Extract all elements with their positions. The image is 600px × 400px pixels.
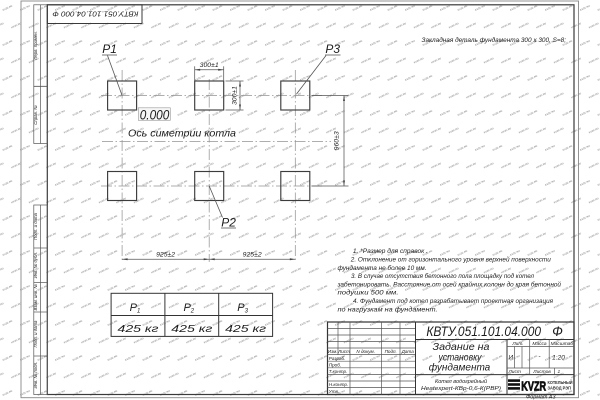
svg-text:Подп.: Подп.	[385, 349, 397, 354]
svg-text:Разраб.: Разраб.	[329, 356, 346, 361]
svg-text:Формат А3: Формат А3	[526, 395, 556, 400]
svg-text:300±1: 300±1	[200, 62, 219, 69]
svg-text:КОТЕЛЬНЫЙ: КОТЕЛЬНЫЙ	[548, 378, 574, 385]
svg-text:Проб.: Проб.	[329, 362, 341, 367]
svg-text:Р1: Р1	[102, 44, 117, 56]
svg-text:Закладная деталь фундамента 3: Закладная деталь фундамента 300 х 300, S…	[422, 36, 567, 44]
svg-text:Справ. №: Справ. №	[33, 105, 38, 125]
svg-text:И: И	[508, 355, 513, 362]
svg-text:Изм.: Изм.	[328, 349, 338, 354]
svg-text:1: 1	[558, 369, 561, 375]
svg-text:Листов: Листов	[532, 369, 551, 375]
svg-text:Р2: Р2	[221, 217, 236, 229]
svg-text:Подп. и дата: Подп. и дата	[33, 320, 38, 348]
svg-text:Масштаб: Масштаб	[551, 341, 574, 347]
svg-text:КВТУ.051.101.04.000 Ф: КВТУ.051.101.04.000 Ф	[53, 10, 139, 19]
svg-text:925±2: 925±2	[243, 251, 262, 258]
svg-text:425 кг: 425 кг	[171, 323, 212, 335]
svg-text:Котел водогрейный: Котел водогрейный	[435, 378, 487, 385]
svg-text:425 кг: 425 кг	[225, 323, 266, 335]
svg-text:925±2: 925±2	[156, 251, 175, 258]
svg-text:Взам. инв. №: Взам. инв. №	[33, 284, 38, 311]
svg-text:425 кг: 425 кг	[118, 323, 159, 335]
svg-text:Лист: Лист	[508, 369, 521, 375]
svg-text:Лист: Лист	[337, 349, 350, 354]
svg-text:Heatexpert-КВр-0,6-К(РВР): Heatexpert-КВр-0,6-К(РВР)	[421, 386, 501, 392]
svg-text:забетонировать. Расстояние от: забетонировать. Расстояние от осей крайн…	[337, 280, 562, 288]
svg-text:фундамента: фундамента	[429, 362, 491, 374]
svg-text:Перв. примен.: Перв. примен.	[33, 31, 38, 60]
svg-text:Р3: Р3	[325, 44, 340, 56]
svg-text:3. В случае отсутствия бетонно: 3. В случае отсутствия бетонного пола пл…	[351, 272, 534, 280]
svg-text:Подп. и дата: Подп. и дата	[33, 212, 38, 240]
svg-text:KVZR: KVZR	[521, 378, 546, 393]
svg-text:Ф: Ф	[552, 324, 563, 339]
svg-text:1. *Размер для справок .: 1. *Размер для справок .	[353, 247, 428, 255]
svg-text:Лит.: Лит.	[511, 341, 523, 347]
svg-text:Утв.: Утв.	[329, 389, 339, 394]
svg-text:КВТУ.051.101.04.000: КВТУ.051.101.04.000	[426, 324, 541, 339]
svg-text:0.000: 0.000	[140, 107, 170, 122]
svg-text:фундамента не более 10 мм.: фундамента не более 10 мм.	[338, 264, 427, 272]
svg-text:N докум.: N докум.	[356, 349, 375, 354]
svg-text:ЗАВОД РЭП: ЗАВОД РЭП	[548, 386, 572, 391]
svg-text:Н.контр.: Н.контр.	[329, 382, 348, 387]
svg-text:Инв. № дубл.: Инв. № дубл.	[33, 252, 38, 278]
svg-text:960±3: 960±3	[334, 131, 341, 150]
svg-text:300±1: 300±1	[232, 86, 239, 105]
svg-text:Задание на: Задание на	[433, 342, 490, 353]
svg-text:2. Отклонение от горизонтально: 2. Отклонение от горизонтального уровня …	[350, 256, 551, 264]
svg-text:Масса: Масса	[532, 341, 547, 347]
svg-text:подушки 500 мм.: подушки 500 мм.	[338, 289, 399, 297]
svg-text:4. Фундамент под котел разраба: 4. Фундамент под котел разрабатывает про…	[353, 297, 553, 305]
svg-text:Ось симетрии котла: Ось симетрии котла	[128, 128, 236, 140]
svg-text:1:20: 1:20	[552, 355, 565, 362]
svg-text:Инв. № подл.: Инв. № подл.	[33, 362, 38, 389]
svg-text:Т.контр.: Т.контр.	[329, 369, 348, 374]
svg-text:Дата: Дата	[401, 349, 415, 354]
svg-text:по нагрузкам на фундамент.: по нагрузкам на фундамент.	[338, 305, 438, 313]
